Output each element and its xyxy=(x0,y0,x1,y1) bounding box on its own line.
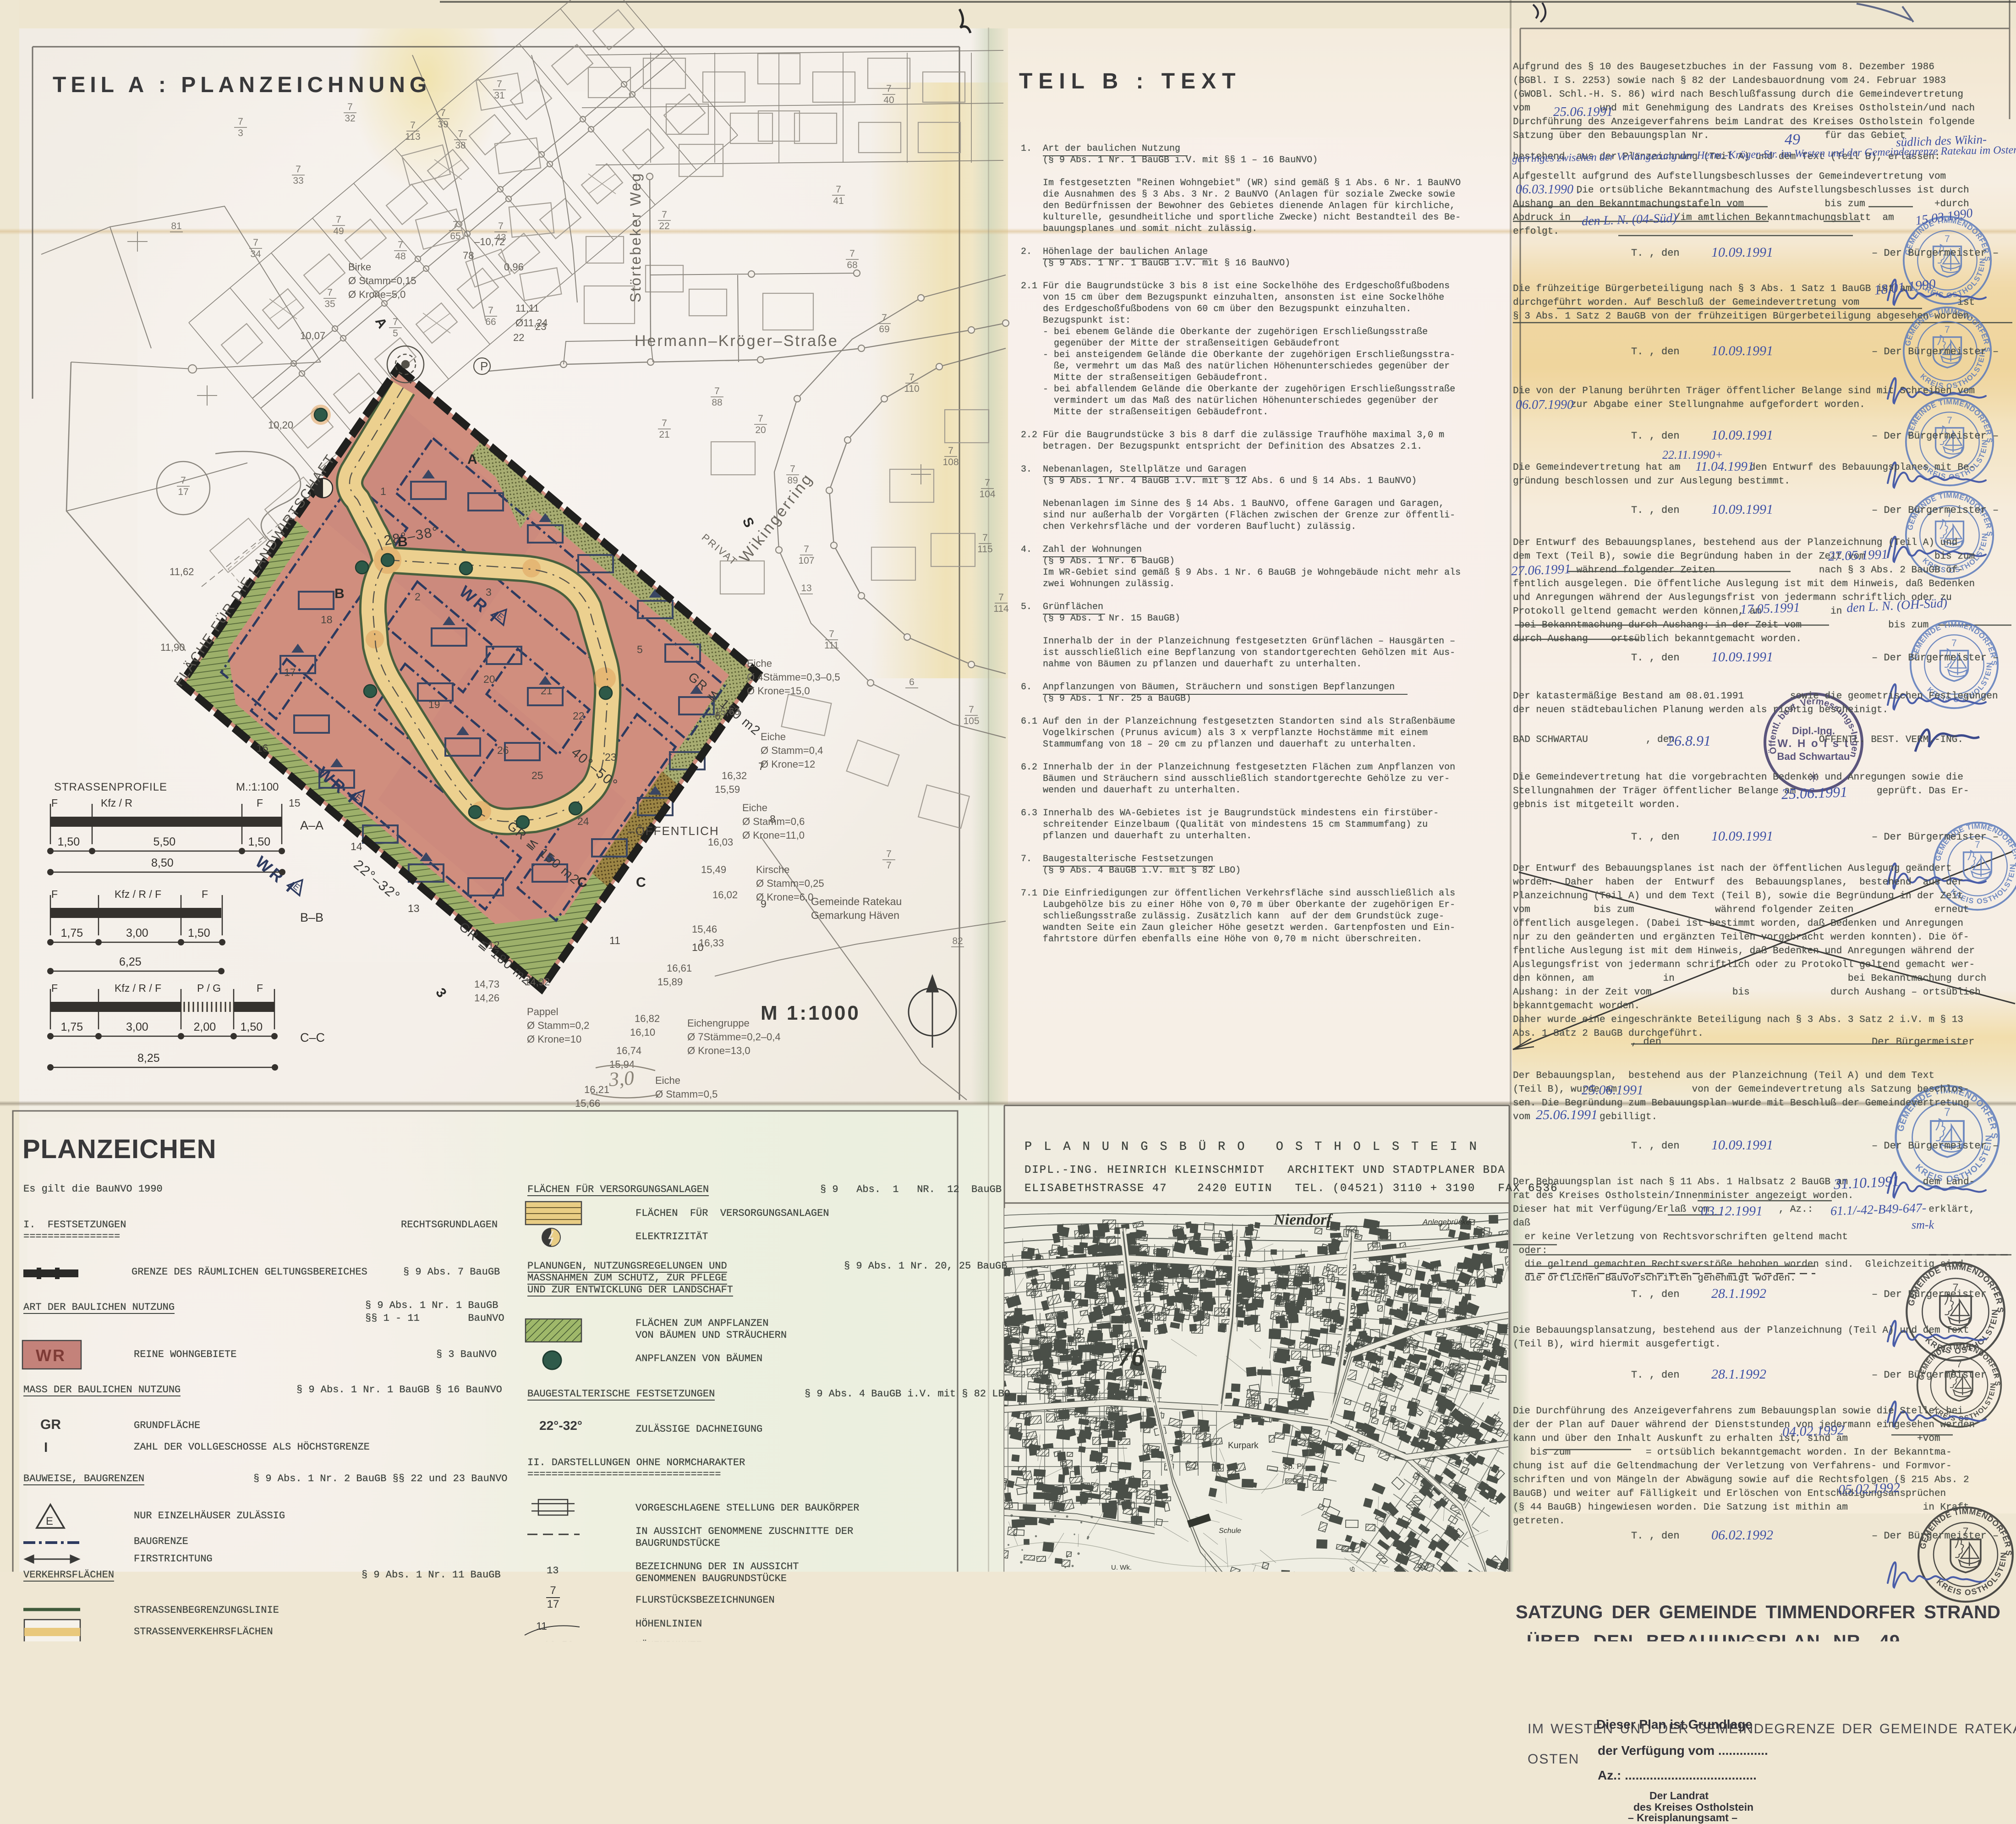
svg-text:1,50: 1,50 xyxy=(248,835,271,848)
svg-text:16,32: 16,32 xyxy=(722,770,747,781)
svg-text:14: 14 xyxy=(351,841,362,852)
svg-text:B–B: B–B xyxy=(300,911,323,924)
svg-text:11,90: 11,90 xyxy=(160,642,185,653)
svg-text:7: 7 xyxy=(985,478,990,488)
svg-text:14,73: 14,73 xyxy=(474,978,499,990)
svg-text:Hermann–Kröger–Straße: Hermann–Kröger–Straße xyxy=(635,332,838,350)
svg-text:69: 69 xyxy=(879,324,889,335)
svg-text:13: 13 xyxy=(801,583,811,593)
svg-text:10,20: 10,20 xyxy=(268,419,293,431)
svg-text:105: 105 xyxy=(963,716,979,726)
svg-text:7: 7 xyxy=(804,544,809,555)
svg-text:8,25: 8,25 xyxy=(137,1052,160,1065)
svg-text:Ø Krone=11,0: Ø Krone=11,0 xyxy=(742,830,805,841)
svg-text:A–A: A–A xyxy=(300,819,323,832)
svg-text:7: 7 xyxy=(849,248,855,259)
svg-text:P / G: P / G xyxy=(197,982,221,994)
svg-text:20: 20 xyxy=(755,425,766,435)
svg-text:0,96: 0,96 xyxy=(504,261,524,273)
svg-text:5: 5 xyxy=(393,328,398,339)
svg-text:35: 35 xyxy=(324,299,335,309)
svg-text:21: 21 xyxy=(541,685,553,697)
svg-text:Sp. Pl.: Sp. Pl. xyxy=(1283,1462,1306,1471)
svg-text:U. Wk.: U. Wk. xyxy=(1111,1564,1132,1571)
svg-text:7: 7 xyxy=(458,129,463,139)
svg-text:7: 7 xyxy=(253,237,258,248)
svg-text:7: 7 xyxy=(909,372,915,383)
svg-text:Schule: Schule xyxy=(1219,1527,1241,1535)
svg-text:7: 7 xyxy=(1947,415,1952,426)
svg-text:31: 31 xyxy=(494,90,504,101)
svg-text:Pappel: Pappel xyxy=(527,1006,559,1017)
svg-text:–ÖFFENTLICH: –ÖFFENTLICH xyxy=(628,824,719,838)
svg-text:82: 82 xyxy=(952,936,963,946)
svg-text:7: 7 xyxy=(393,317,398,327)
svg-text:7: 7 xyxy=(829,629,834,639)
svg-text:16,02: 16,02 xyxy=(712,889,738,901)
svg-text:40: 40 xyxy=(883,95,894,105)
svg-text:15,49: 15,49 xyxy=(701,864,726,875)
svg-text:17: 17 xyxy=(284,666,296,678)
svg-text:Ø Krone=5,0: Ø Krone=5,0 xyxy=(348,289,405,300)
svg-text:Ø Krone=10: Ø Krone=10 xyxy=(527,1033,581,1045)
svg-text:F: F xyxy=(257,982,263,994)
svg-text:Bad Schwartau: Bad Schwartau xyxy=(1777,751,1850,762)
svg-text:E: E xyxy=(46,1515,53,1527)
svg-text:7: 7 xyxy=(488,305,493,316)
svg-text:25: 25 xyxy=(531,769,543,781)
svg-text:1: 1 xyxy=(380,485,386,497)
svg-text:81: 81 xyxy=(171,221,181,231)
svg-text:7: 7 xyxy=(969,704,974,715)
svg-text:7: 7 xyxy=(1945,324,1950,335)
svg-text:Ø Krone=6,0: Ø Krone=6,0 xyxy=(756,891,813,903)
svg-text:15,59: 15,59 xyxy=(715,784,740,795)
svg-text:88: 88 xyxy=(712,397,722,408)
svg-text:3: 3 xyxy=(433,985,449,1000)
svg-text:Ø Stamm=0,25: Ø Stamm=0,25 xyxy=(756,878,824,889)
svg-text:16,61: 16,61 xyxy=(667,962,692,974)
svg-text:49: 49 xyxy=(333,226,344,236)
svg-text:F: F xyxy=(257,797,263,809)
svg-text:21: 21 xyxy=(659,429,669,440)
svg-text:5: 5 xyxy=(637,643,643,655)
svg-text:B: B xyxy=(398,534,408,549)
svg-text:Gemarkung Häven: Gemarkung Häven xyxy=(811,909,899,921)
svg-text:7: 7 xyxy=(410,120,416,131)
svg-text:108: 108 xyxy=(942,457,959,467)
svg-text:16,74: 16,74 xyxy=(616,1045,641,1056)
svg-text:78: 78 xyxy=(463,250,474,261)
svg-text:A: A xyxy=(372,315,390,331)
svg-text:Gemeinde Ratekau: Gemeinde Ratekau xyxy=(811,896,902,907)
svg-text:7: 7 xyxy=(1956,1360,1961,1370)
svg-text:Ø Krone=13,0: Ø Krone=13,0 xyxy=(687,1045,751,1056)
svg-text:16: 16 xyxy=(257,742,268,754)
svg-text:7: 7 xyxy=(550,1584,556,1597)
svg-text:7: 7 xyxy=(347,102,353,112)
svg-text:11,62: 11,62 xyxy=(170,566,194,577)
svg-text:Ø 7Stämme=0,2–0,4: Ø 7Stämme=0,2–0,4 xyxy=(687,1031,781,1043)
svg-text:3,00: 3,00 xyxy=(126,927,148,939)
svg-text:B: B xyxy=(334,586,345,601)
svg-text:3: 3 xyxy=(486,586,492,598)
svg-text:17: 17 xyxy=(178,487,188,497)
svg-text:Störtebeker Weg: Störtebeker Weg xyxy=(627,172,644,302)
svg-text:7: 7 xyxy=(440,108,446,118)
svg-text:110: 110 xyxy=(904,384,919,394)
svg-text:15,63: 15,63 xyxy=(715,706,740,717)
svg-text:16,33: 16,33 xyxy=(699,937,724,949)
svg-text:11,11: 11,11 xyxy=(515,302,539,314)
svg-text:16,21: 16,21 xyxy=(584,1084,609,1095)
svg-text:15,89: 15,89 xyxy=(657,976,683,988)
svg-text:1,50: 1,50 xyxy=(188,927,210,939)
svg-text:Ø 4Stämme=0,3–0,5: Ø 4Stämme=0,3–0,5 xyxy=(747,671,840,683)
svg-text:Kurpark: Kurpark xyxy=(1228,1441,1259,1450)
svg-text:7: 7 xyxy=(453,220,458,230)
svg-text:Eiche: Eiche xyxy=(761,731,786,742)
svg-text:Kirsche: Kirsche xyxy=(756,864,789,875)
svg-text:Niendorf: Niendorf xyxy=(1273,1211,1333,1228)
svg-text:104: 104 xyxy=(979,489,995,500)
svg-text:Ø Stamm=0,15: Ø Stamm=0,15 xyxy=(348,275,416,286)
svg-text:7: 7 xyxy=(662,209,667,220)
svg-text:13: 13 xyxy=(408,902,420,914)
svg-text:7: 7 xyxy=(714,386,720,396)
svg-text:17: 17 xyxy=(547,1598,559,1610)
svg-text:7: 7 xyxy=(327,287,333,298)
svg-text:A: A xyxy=(467,452,477,467)
svg-text:GR: GR xyxy=(40,1417,61,1432)
svg-text:7: 7 xyxy=(398,240,403,250)
svg-text:Kfz / R / F: Kfz / R / F xyxy=(115,982,161,994)
svg-text:7: 7 xyxy=(998,592,1004,603)
svg-text:76: 76 xyxy=(1118,1342,1145,1372)
svg-text:48: 48 xyxy=(395,251,405,262)
svg-text:18: 18 xyxy=(321,614,333,626)
svg-text:7: 7 xyxy=(886,83,892,94)
svg-text:C: C xyxy=(577,875,587,890)
svg-text:8,50: 8,50 xyxy=(151,857,174,869)
svg-text:107: 107 xyxy=(798,555,814,566)
svg-text:3,0: 3,0 xyxy=(608,1066,635,1091)
svg-text:1,50: 1,50 xyxy=(241,1021,263,1033)
svg-text:11: 11 xyxy=(609,934,620,946)
svg-text:16,03: 16,03 xyxy=(708,836,733,848)
svg-text:19: 19 xyxy=(428,698,440,710)
svg-text:15,66: 15,66 xyxy=(575,1098,600,1109)
svg-text:14,26: 14,26 xyxy=(474,992,499,1004)
svg-text:C–C: C–C xyxy=(300,1031,325,1044)
svg-text:7: 7 xyxy=(982,533,988,543)
svg-text:Ø Stamm=0,5: Ø Stamm=0,5 xyxy=(655,1088,718,1100)
svg-text:20: 20 xyxy=(483,673,495,685)
svg-text:M 1:1000: M 1:1000 xyxy=(761,1002,860,1024)
svg-text:M 1:5000: M 1:5000 xyxy=(1315,1721,1403,1743)
svg-text:6: 6 xyxy=(909,677,915,687)
svg-text:6,25: 6,25 xyxy=(119,956,142,968)
svg-text:7: 7 xyxy=(497,79,502,89)
svg-text:114: 114 xyxy=(993,604,1009,614)
svg-text:Kfz / R / F: Kfz / R / F xyxy=(115,888,161,900)
svg-text:Eichengruppe: Eichengruppe xyxy=(687,1017,750,1029)
svg-text:Eiche: Eiche xyxy=(655,1075,680,1086)
svg-text:12: 12 xyxy=(488,939,500,951)
svg-text:7: 7 xyxy=(886,860,892,871)
svg-text:68: 68 xyxy=(847,260,857,270)
svg-text:24: 24 xyxy=(577,815,589,827)
svg-text:ÜBERSICHTSPLAN: ÜBERSICHTSPLAN xyxy=(1030,1724,1207,1746)
svg-text:33: 33 xyxy=(293,176,303,186)
svg-text:16,10: 16,10 xyxy=(630,1027,655,1038)
svg-text:2,00: 2,00 xyxy=(194,1021,216,1033)
svg-text:Eiche: Eiche xyxy=(742,802,767,813)
svg-text:15,46: 15,46 xyxy=(692,923,717,935)
svg-text:WR: WR xyxy=(36,1346,66,1365)
svg-text:7: 7 xyxy=(758,413,763,424)
svg-text:10,07: 10,07 xyxy=(300,330,325,341)
svg-text:7: 7 xyxy=(336,214,341,225)
svg-text:–10,72: –10,72 xyxy=(474,236,505,247)
svg-text:32: 32 xyxy=(345,113,355,124)
svg-text:11: 11 xyxy=(536,1620,547,1632)
svg-text:F: F xyxy=(51,888,58,900)
svg-text:1,50: 1,50 xyxy=(58,835,80,848)
svg-text:Ø Krone=12: Ø Krone=12 xyxy=(761,758,815,770)
svg-text:C: C xyxy=(636,875,646,890)
svg-text:STRASSENPROFILE: STRASSENPROFILE xyxy=(54,781,167,793)
svg-text:7: 7 xyxy=(948,445,953,456)
svg-text:7: 7 xyxy=(882,313,887,323)
svg-text:23: 23 xyxy=(535,321,546,332)
svg-text:Anlegebrücke: Anlegebrücke xyxy=(1422,1218,1470,1226)
svg-text:5,50: 5,50 xyxy=(153,835,176,848)
svg-text:Birke: Birke xyxy=(348,261,371,273)
svg-text:7: 7 xyxy=(498,221,504,231)
svg-text:1,75: 1,75 xyxy=(61,1021,83,1033)
svg-text:22: 22 xyxy=(659,221,669,231)
svg-text:2: 2 xyxy=(415,591,421,603)
svg-text:14,92: 14,92 xyxy=(525,976,550,988)
svg-text:S: S xyxy=(740,515,757,530)
svg-text:M.:1:100: M.:1:100 xyxy=(236,781,279,793)
svg-text:F: F xyxy=(202,888,208,900)
svg-text:7: 7 xyxy=(181,475,186,486)
svg-text:3: 3 xyxy=(238,128,243,138)
svg-text:Ø Stamm=0,2: Ø Stamm=0,2 xyxy=(527,1020,589,1031)
svg-text:22: 22 xyxy=(513,332,524,343)
svg-text:115: 115 xyxy=(977,544,992,555)
svg-text:P: P xyxy=(480,359,488,373)
svg-text:7: 7 xyxy=(296,164,301,175)
svg-text:16,82: 16,82 xyxy=(635,1013,660,1024)
svg-text:I: I xyxy=(44,1440,48,1455)
svg-text:1,75: 1,75 xyxy=(61,927,83,939)
svg-text:15: 15 xyxy=(289,797,301,809)
svg-text:7: 7 xyxy=(886,849,892,859)
svg-text:7: 7 xyxy=(790,464,795,474)
svg-text:16,: 16, xyxy=(1262,1661,1272,1669)
svg-text:39: 39 xyxy=(438,119,448,130)
svg-text:7: 7 xyxy=(836,184,841,195)
svg-text:7: 7 xyxy=(238,116,243,127)
svg-text:23: 23 xyxy=(605,751,617,763)
svg-text:3,00: 3,00 xyxy=(126,1021,148,1033)
svg-text:66: 66 xyxy=(485,317,496,327)
svg-text:F: F xyxy=(51,982,58,994)
svg-text:26: 26 xyxy=(497,744,509,756)
svg-text:22: 22 xyxy=(573,710,585,722)
svg-text:Eiche: Eiche xyxy=(747,658,772,669)
svg-text:Ø Stamm=0,4: Ø Stamm=0,4 xyxy=(761,745,823,756)
svg-text:41: 41 xyxy=(833,196,844,206)
svg-text:113: 113 xyxy=(405,132,420,142)
svg-text:Ø Krone=15,0: Ø Krone=15,0 xyxy=(747,685,810,697)
svg-text:Kfz / R: Kfz / R xyxy=(101,797,132,809)
svg-text:38: 38 xyxy=(455,140,466,151)
svg-text:Ø Stamm=0,6: Ø Stamm=0,6 xyxy=(742,816,805,827)
svg-text:111: 111 xyxy=(824,640,839,651)
svg-text:F: F xyxy=(51,797,58,809)
svg-text:7: 7 xyxy=(662,418,667,429)
